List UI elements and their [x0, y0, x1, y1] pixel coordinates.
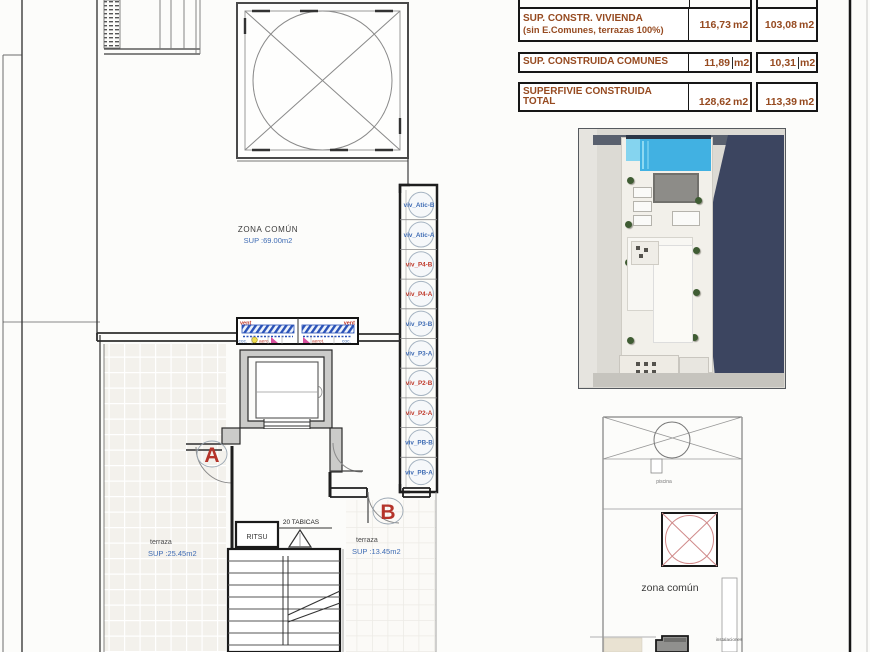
value-cell: 10,31	[758, 57, 798, 69]
vent-label-left: vent	[240, 321, 251, 327]
coc-label-right: coc.	[342, 340, 351, 345]
unit-cell: m2	[798, 57, 816, 69]
render-volume	[653, 245, 693, 343]
stairs	[228, 549, 343, 652]
unit-cell: m2	[732, 57, 750, 69]
elevator-shaft	[222, 350, 342, 472]
terraza-left-floor	[104, 344, 226, 652]
render-plant	[627, 337, 634, 344]
render-seating	[631, 241, 659, 265]
boiler-symbol	[252, 337, 258, 343]
piscina-label: piscina	[656, 479, 672, 485]
vent-strip: vent vent coc. aero. aerot. coc.	[237, 318, 358, 345]
skylight-large	[237, 3, 408, 185]
render-plant	[627, 177, 634, 184]
stair-arrow: 20 TABICAS	[278, 519, 332, 547]
topleft-walls	[104, 0, 200, 54]
render-pool-step-line	[647, 141, 649, 169]
render-cast-shadow	[704, 135, 784, 387]
unit-cell: m2	[799, 19, 816, 31]
value-cell: 103,08	[758, 19, 799, 31]
render-bottom-strip	[593, 373, 784, 387]
render-lounger-double	[672, 211, 700, 226]
render-plant	[695, 197, 702, 204]
ritsu-box: RITSU	[236, 522, 278, 547]
render-pool	[640, 139, 711, 171]
viv-unit-label: viv_PB-B	[405, 440, 433, 447]
value-cell: 113,39	[758, 96, 799, 108]
boundary-lines	[3, 0, 104, 652]
table-row-comunes-alt: 10,31m2	[756, 52, 818, 73]
terraza-right-label: terraza	[356, 537, 378, 544]
key-plan: piscina zona común instalaciones	[590, 417, 743, 652]
aero-label-right: aerot.	[312, 339, 324, 345]
door-a-letter: A	[204, 444, 219, 467]
ritsu-label: RITSU	[247, 534, 268, 541]
roof-render	[578, 128, 786, 389]
viv-unit-label: viv_P4-A	[406, 291, 433, 298]
viv-unit-label: viv_Atic-A	[404, 232, 435, 239]
keyplan-zona-comun-label: zona común	[641, 582, 698, 594]
terraza-right-area: SUP :13.45m2	[352, 547, 401, 556]
main-plan: ZONA COMÚN SUP :69.00m2 viv_Atic-B viv_A…	[3, 0, 437, 652]
row-label-2: TOTAL	[523, 97, 685, 108]
viv-unit-label: viv_P4-B	[406, 262, 433, 269]
value-cell: 128,62	[689, 96, 733, 108]
viv-unit-label: viv_P3-A	[406, 351, 433, 358]
unit-cell: m2	[733, 96, 750, 108]
door-b-letter: B	[380, 501, 395, 524]
render-plant	[693, 289, 700, 296]
viv-unit-label: viv_P2-B	[406, 380, 433, 387]
render-lounger	[633, 215, 652, 226]
viv-unit-label: viv_P2-A	[406, 410, 433, 417]
render-pavement	[579, 129, 597, 387]
render-plant	[693, 247, 700, 254]
zona-comun-area: SUP :69.00m2	[244, 236, 293, 245]
viv-units-strip: viv_Atic-B viv_Atic-A viv_P4-B viv_P4-A …	[400, 185, 437, 492]
coc-label-left: coc.	[239, 340, 248, 345]
render-skylight	[653, 173, 699, 203]
viv-unit-label: viv_Atic-B	[404, 202, 435, 209]
table-row-total-alt: 113,39m2	[756, 82, 818, 112]
floorplan-sheet: ZONA COMÚN SUP :69.00m2 viv_Atic-B viv_A…	[0, 0, 870, 652]
zona-comun-label: ZONA COMÚN	[238, 225, 298, 234]
tabicas-label: 20 TABICAS	[283, 519, 320, 526]
unit-cell: m2	[799, 96, 816, 108]
table-row-total: SUPERFIVIE CONSTRUIDA TOTAL 128,62m2	[518, 82, 752, 112]
row-label: SUP. CONSTRUIDA COMUNES	[523, 57, 685, 68]
table-row-vivienda: SUP. CONSTR. VIVIENDA (sin E.Comunes, te…	[518, 7, 752, 42]
instalaciones-label: instalaciones	[716, 637, 743, 642]
render-pool-step-line	[642, 141, 644, 169]
table-row-comunes: SUP. CONSTRUIDA COMUNES 11,89m2	[518, 52, 752, 73]
vent-label-right: vent	[344, 321, 355, 327]
render-lounger	[633, 187, 652, 198]
table-row-vivienda-alt: 103,08m2	[756, 7, 818, 42]
row-label: SUP. CONSTR. VIVIENDA	[523, 14, 685, 25]
viv-unit-label: viv_PB-A	[405, 470, 433, 477]
row-label-2: (sin E.Comunes, terrazas 100%)	[523, 25, 685, 36]
keyplan-skylight	[662, 513, 717, 566]
terraza-left-label: terraza	[150, 539, 172, 546]
viv-unit-label: viv_P3-B	[406, 321, 433, 328]
render-plant	[625, 221, 632, 228]
terraza-left-area: SUP :25.45m2	[148, 549, 197, 558]
value-cell: 11,89	[689, 57, 732, 69]
aero-label-left: aero.	[259, 339, 270, 345]
keyplan-circle	[654, 422, 690, 458]
render-lounger	[633, 201, 652, 212]
unit-cell: m2	[733, 19, 750, 31]
value-cell: 116,73	[689, 19, 733, 31]
